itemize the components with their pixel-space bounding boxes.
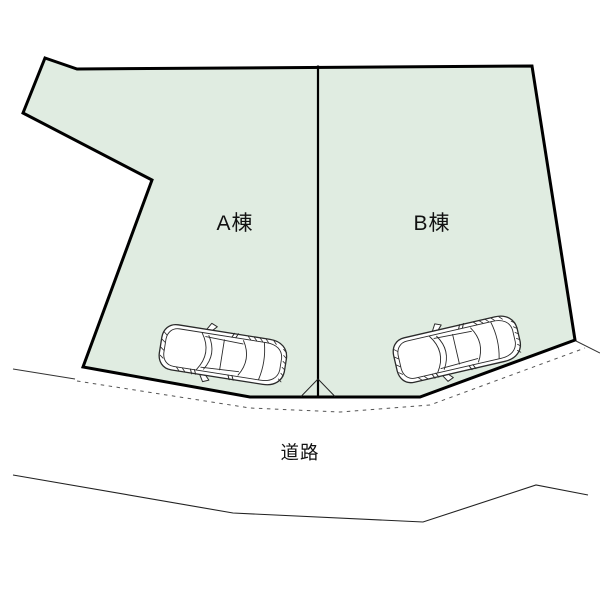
road-upper-edge-left-line — [13, 369, 75, 379]
road-label: 道路 — [280, 442, 319, 463]
road-upper-edge-right-line — [576, 341, 600, 353]
site-plan-diagram: A棟 B棟 道路 — [0, 0, 600, 600]
plot-b-label: B棟 — [413, 212, 450, 235]
plot-a-label: A棟 — [216, 212, 253, 235]
road-lower-edge-line — [13, 475, 588, 522]
